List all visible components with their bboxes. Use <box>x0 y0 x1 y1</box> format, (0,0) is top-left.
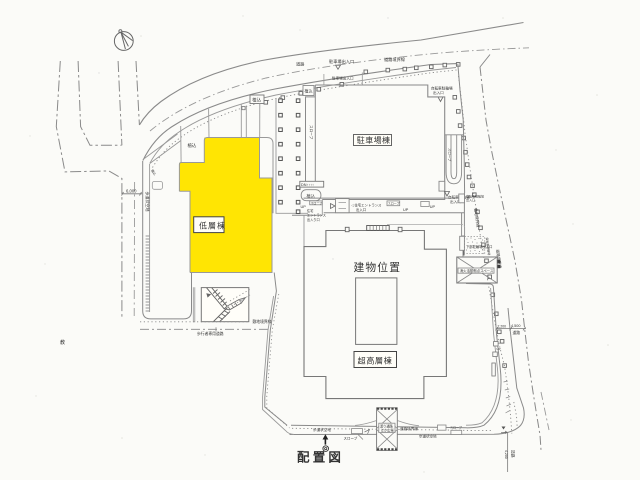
svg-text:建物位置: 建物位置 <box>354 260 402 274</box>
svg-text:ほか広場: ほか広場 <box>381 428 395 433</box>
svg-text:UP: UP <box>430 205 436 209</box>
svg-text:◁住宅エントランス: ◁住宅エントランス <box>351 203 382 208</box>
svg-text:4,500: 4,500 <box>511 324 521 328</box>
svg-text:駐車場棟: 駐車場棟 <box>357 135 391 145</box>
svg-text:住宅: 住宅 <box>307 208 313 213</box>
svg-text:歩行者専用道路: 歩行者専用道路 <box>197 331 224 336</box>
svg-text:4,200: 4,200 <box>504 450 508 459</box>
svg-text:配置図: 配置図 <box>297 450 344 465</box>
svg-text:スロープ: スロープ <box>310 200 322 205</box>
svg-text:スロープ: スロープ <box>388 201 400 206</box>
svg-text:2,200: 2,200 <box>498 325 507 329</box>
svg-text:駐車場出入口: 駐車場出入口 <box>329 58 354 65</box>
svg-text:自転車駐輪場: 自転車駐輪場 <box>431 86 453 91</box>
svg-text:植込: 植込 <box>188 142 197 149</box>
svg-text:スロープ: スロープ <box>309 125 314 140</box>
svg-text:DN↑↑↑↑: DN↑↑↑↑ <box>301 183 314 187</box>
svg-text:出入口: 出入口 <box>356 207 366 212</box>
svg-text:出入口: 出入口 <box>433 90 444 95</box>
svg-text:道路境界線: 道路境界線 <box>400 426 418 431</box>
svg-text:UP: UP <box>403 208 409 212</box>
svg-text:低層棟: 低層棟 <box>199 220 226 230</box>
svg-text:植込: 植込 <box>252 96 261 103</box>
svg-text:歩道状空地: 歩道状空地 <box>313 427 331 432</box>
svg-text:道路: 道路 <box>513 330 521 335</box>
svg-text:出入り口: 出入り口 <box>307 217 320 222</box>
svg-text:歩道状空地: 歩道状空地 <box>145 192 151 212</box>
svg-text:出入口: 出入口 <box>466 197 475 202</box>
svg-text:超高層棟: 超高層棟 <box>358 355 393 365</box>
svg-text:道路境界線: 道路境界線 <box>384 56 406 63</box>
svg-text:6,000: 6,000 <box>126 189 137 194</box>
svg-text:植込: 植込 <box>305 88 313 94</box>
svg-text:UP: UP <box>301 205 307 209</box>
svg-text:エントランス: エントランス <box>307 213 326 218</box>
svg-text:スロープ: スロープ <box>344 435 358 440</box>
svg-text:駐車場出入口: 駐車場出入口 <box>332 75 354 80</box>
svg-text:UP: UP <box>497 347 501 351</box>
svg-text:消火活動拠点スペース: 消火活動拠点スペース <box>460 268 494 273</box>
svg-text:歩道状空地: 歩道状空地 <box>419 434 437 439</box>
svg-text:スロープ: スロープ <box>448 148 453 162</box>
svg-text:スロープ: スロープ <box>450 425 462 430</box>
svg-text:教: 教 <box>60 339 65 346</box>
svg-text:道路: 道路 <box>296 61 305 68</box>
svg-text:道路: 道路 <box>511 450 516 458</box>
